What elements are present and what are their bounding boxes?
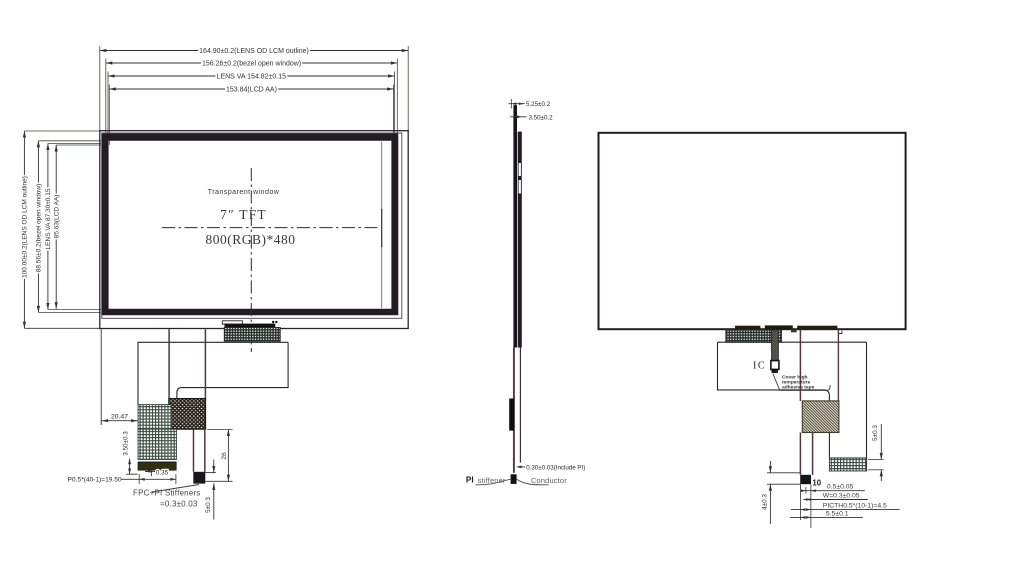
svg-text:5±0.3: 5±0.3 [205,497,212,513]
svg-text:0.30±0.03(Include PI): 0.30±0.03(Include PI) [526,464,585,471]
svg-text:adhesive tape: adhesive tape [782,385,815,391]
svg-text:IC: IC [753,361,766,372]
svg-text:0.5±0.05: 0.5±0.05 [827,484,854,491]
svg-text:100.00±0.2(LENS OD LCM outline: 100.00±0.2(LENS OD LCM outline) [22,176,29,278]
svg-text:PI: PI [466,475,474,484]
svg-text:Conductor: Conductor [531,476,567,485]
svg-text:88.56±0.2(bezel open window): 88.56±0.2(bezel open window) [36,184,43,273]
svg-text:26: 26 [221,452,228,460]
svg-text:3.50±0.3: 3.50±0.3 [122,431,129,456]
svg-text:153.84(LCD AA): 153.84(LCD AA) [226,86,277,93]
svg-text:Cover high: Cover high [782,374,808,380]
svg-text:164.90±0.2(LENS OD LCM outline: 164.90±0.2(LENS OD LCM outline) [199,48,309,55]
svg-text:LENS VA 87.30±0.15: LENS VA 87.30±0.15 [45,188,52,249]
svg-text:P0.5*(40-1)=19.50: P0.5*(40-1)=19.50 [68,477,122,484]
svg-text:LENS VA 154.82±0.15: LENS VA 154.82±0.15 [217,73,287,80]
svg-text:156.26±0.2(bezel open window): 156.26±0.2(bezel open window) [202,60,301,67]
svg-text:10: 10 [812,478,821,487]
svg-text:85.63(LCD AA): 85.63(LCD AA) [53,195,60,239]
svg-text:5.5±0.1: 5.5±0.1 [826,510,849,517]
svg-text:7″ TFT: 7″ TFT [220,207,267,222]
svg-text:PICTH0.5*(10-1)=4.5: PICTH0.5*(10-1)=4.5 [823,503,887,510]
svg-text:0.35: 0.35 [156,469,169,476]
svg-text:=0.3±0.03: =0.3±0.03 [160,500,198,509]
svg-text:Transparent window: Transparent window [208,187,280,196]
svg-text:W=0.3±0.05: W=0.3±0.05 [823,493,860,500]
svg-text:3.50±0.2: 3.50±0.2 [529,114,554,121]
svg-text:5.25±0.2: 5.25±0.2 [526,101,551,108]
svg-text:5±0.3: 5±0.3 [872,425,879,441]
svg-text:4±0.3: 4±0.3 [762,494,769,510]
svg-text:temperature: temperature [782,380,811,386]
svg-text:800(RGB)*480: 800(RGB)*480 [206,232,296,247]
svg-text:FPC+PI Stiffeners: FPC+PI Stiffeners [133,489,201,498]
svg-text:20.47: 20.47 [111,413,128,420]
